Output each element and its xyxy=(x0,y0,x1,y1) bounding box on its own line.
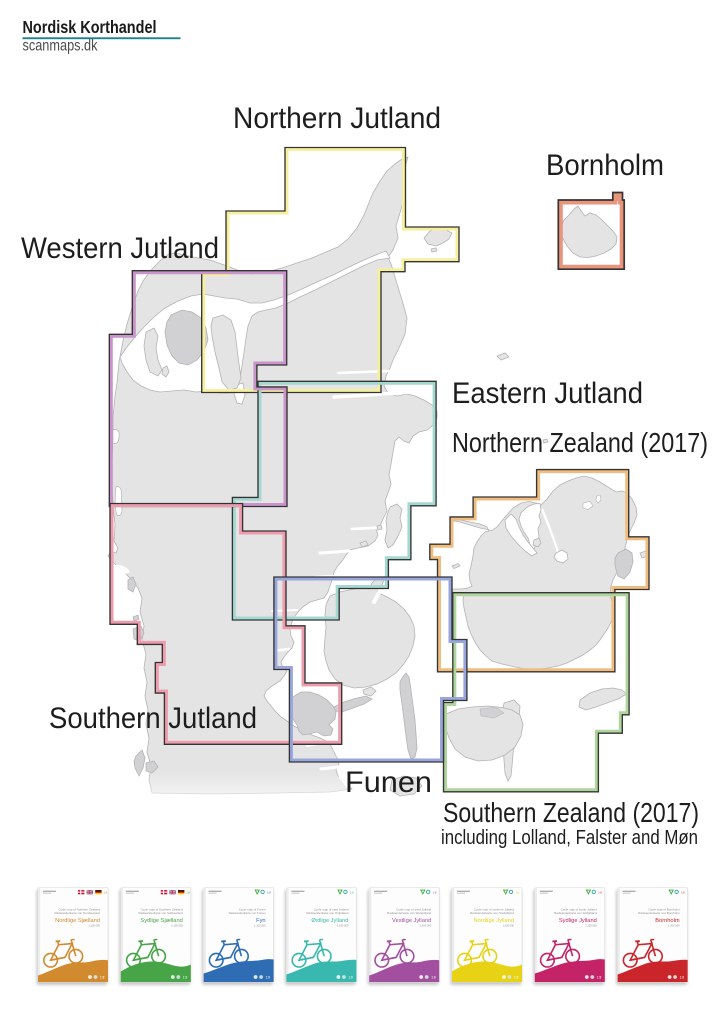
svg-text:1:8: 1:8 xyxy=(680,976,685,980)
svg-text:Vestlige Jylland: Vestlige Jylland xyxy=(392,918,431,924)
svg-text:1:8: 1:8 xyxy=(516,891,520,895)
svg-text:1:8: 1:8 xyxy=(681,891,685,895)
svg-text:Nordlige Jylland: Nordlige Jylland xyxy=(474,918,514,924)
svg-text:Bornholm: Bornholm xyxy=(546,149,664,182)
svg-text:1:100 000: 1:100 000 xyxy=(668,923,680,927)
svg-text:1:100 000: 1:100 000 xyxy=(585,923,597,927)
svg-text:Sydlige Jylland: Sydlige Jylland xyxy=(559,918,597,924)
svg-text:Radwanderkarte von Nordjütland: Radwanderkarte von Nordjütland xyxy=(470,911,514,915)
svg-text:1:100 000: 1:100 000 xyxy=(171,923,183,927)
svg-text:including Lolland, Falster and: including Lolland, Falster and Møn xyxy=(441,826,698,849)
svg-text:Radwanderkarte von Fünen: Radwanderkarte von Fünen xyxy=(229,911,266,915)
svg-text:1:8: 1:8 xyxy=(100,976,105,980)
svg-text:Northern Jutland: Northern Jutland xyxy=(233,102,441,135)
svg-text:1:8: 1:8 xyxy=(431,976,436,980)
svg-text:Eastern Jutland: Eastern Jutland xyxy=(452,377,643,410)
svg-text:Østlige Jylland: Østlige Jylland xyxy=(311,918,348,924)
svg-text:1:8: 1:8 xyxy=(514,976,519,980)
svg-text:1:8: 1:8 xyxy=(267,891,271,895)
svg-text:Radwanderkarte von Westjütland: Radwanderkarte von Westjütland xyxy=(387,911,431,915)
svg-text:1:8: 1:8 xyxy=(104,891,108,895)
svg-text:Radwanderkarte von Bornholm: Radwanderkarte von Bornholm xyxy=(638,911,680,915)
svg-text:1:100 000: 1:100 000 xyxy=(420,923,432,927)
svg-text:1:100 000: 1:100 000 xyxy=(254,923,266,927)
svg-text:Bornholm: Bornholm xyxy=(655,918,680,924)
svg-text:Nordlige Sjælland: Nordlige Sjælland xyxy=(55,918,100,924)
svg-text:1:8: 1:8 xyxy=(350,891,354,895)
svg-text:Northern Zealand (2017): Northern Zealand (2017) xyxy=(452,427,708,458)
svg-text:Southern Jutland: Southern Jutland xyxy=(49,702,257,735)
svg-text:1:8: 1:8 xyxy=(598,891,602,895)
svg-text:Fyn: Fyn xyxy=(256,918,265,924)
svg-text:Nordisk Korthandel: Nordisk Korthandel xyxy=(23,17,157,37)
svg-text:Western Jutland: Western Jutland xyxy=(21,232,219,265)
svg-text:1:100 000: 1:100 000 xyxy=(337,923,349,927)
svg-text:1:100 000: 1:100 000 xyxy=(88,923,100,927)
svg-text:Southern Zealand (2017): Southern Zealand (2017) xyxy=(443,797,699,828)
svg-text:Radwanderkarte von Ostjütland: Radwanderkarte von Ostjütland xyxy=(306,911,348,915)
svg-text:1:8: 1:8 xyxy=(266,976,271,980)
svg-text:1:8: 1:8 xyxy=(183,976,188,980)
svg-text:Sydlige Sjælland: Sydlige Sjælland xyxy=(140,918,182,924)
svg-text:1:8: 1:8 xyxy=(186,891,190,895)
svg-text:Radwanderkarte von Südseeland: Radwanderkarte von Südseeland xyxy=(138,911,183,915)
svg-text:Radwanderkarte von Südjütland: Radwanderkarte von Südjütland xyxy=(554,911,597,915)
svg-text:Funen: Funen xyxy=(345,766,432,799)
svg-text:1:100 000: 1:100 000 xyxy=(502,923,514,927)
svg-text:scanmaps.dk: scanmaps.dk xyxy=(23,38,99,55)
svg-text:1:8: 1:8 xyxy=(433,891,437,895)
svg-text:1:8: 1:8 xyxy=(348,976,353,980)
svg-text:Radwanderkarte von Nordseeland: Radwanderkarte von Nordseeland xyxy=(54,911,100,915)
svg-text:1:8: 1:8 xyxy=(597,976,602,980)
